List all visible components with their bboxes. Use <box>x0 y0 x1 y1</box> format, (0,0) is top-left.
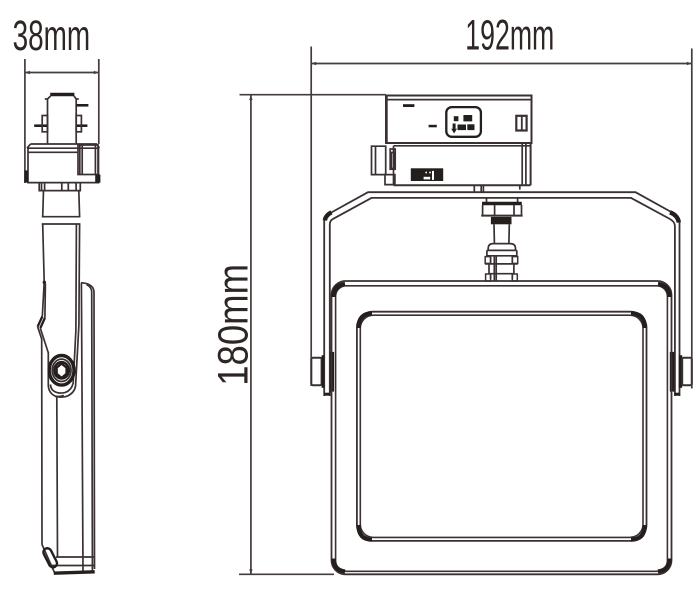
svg-text:192mm: 192mm <box>465 12 554 60</box>
svg-text:38mm: 38mm <box>13 12 91 60</box>
